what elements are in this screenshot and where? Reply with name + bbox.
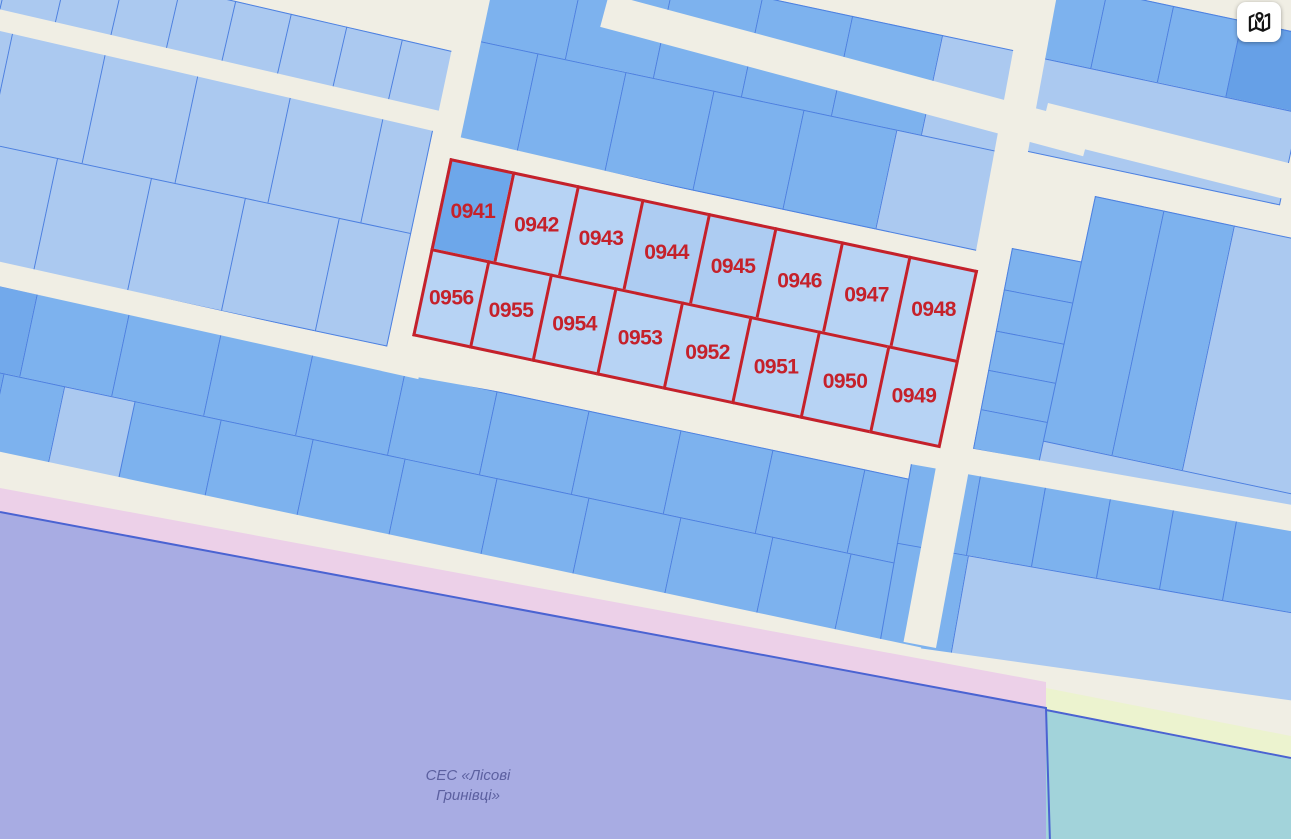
parcel-number-label: 0953 [608, 296, 673, 380]
map-pin-icon [1246, 9, 1273, 36]
parcel-number-label: 0941 [442, 167, 503, 256]
area-name-line2: Гринівці» [378, 786, 558, 806]
parcel-number-label: 0950 [811, 340, 879, 424]
parcel-0949[interactable]: 0949 [869, 345, 959, 448]
parcel-0948[interactable]: 0948 [890, 256, 979, 361]
map-canvas[interactable]: СЕС «Лісові Гринівці» 094109420943094409… [0, 0, 1291, 839]
area-name-label: СЕС «Лісові Гринівці» [378, 766, 558, 807]
parcel-number-label: 0952 [674, 311, 741, 395]
parcel-number-label: 0948 [901, 265, 966, 354]
parcel-number-label: 0951 [743, 325, 810, 409]
parcel-number-label: 0949 [881, 355, 948, 439]
parcel-number-label: 0947 [834, 251, 900, 340]
parcel-number-label: 0954 [543, 283, 606, 367]
parcel-number-label: 0955 [481, 269, 542, 353]
area-name-line1: СЕС «Лісові [378, 766, 558, 786]
parcel-number-label: 0945 [701, 222, 766, 311]
parcel-number-label: 0944 [634, 208, 699, 297]
parcel-number-label: 0942 [505, 180, 568, 269]
parcel-number-label: 0956 [424, 256, 479, 340]
parcel-number-label: 0943 [570, 194, 633, 283]
parcel-number-label: 0946 [767, 236, 832, 325]
map-overview-button[interactable] [1237, 2, 1281, 42]
